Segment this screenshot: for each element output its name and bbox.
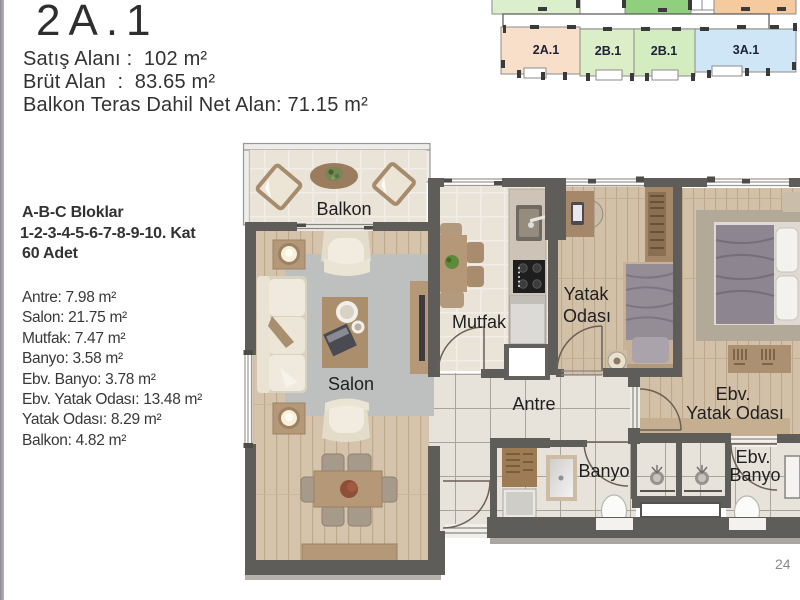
svg-text:2B.1: 2B.1: [595, 44, 621, 58]
svg-text:Odası: Odası: [563, 306, 611, 326]
svg-text:Banyo: Banyo: [578, 461, 629, 481]
svg-text:2A.1: 2A.1: [533, 43, 559, 57]
svg-text:Mutfak: Mutfak: [452, 312, 507, 332]
svg-text:Balkon: Balkon: [316, 199, 371, 219]
svg-text:Ebv.: Ebv.: [736, 447, 771, 467]
svg-text:Banyo: Banyo: [729, 465, 780, 485]
svg-text:Salon: Salon: [328, 374, 374, 394]
svg-text:Yatak: Yatak: [564, 284, 610, 304]
svg-text:Yatak Odası: Yatak Odası: [686, 403, 784, 423]
svg-text:Ebv.: Ebv.: [716, 384, 751, 404]
svg-text:2B.1: 2B.1: [651, 44, 677, 58]
svg-text:3A.1: 3A.1: [733, 43, 759, 57]
svg-text:Antre: Antre: [512, 394, 555, 414]
